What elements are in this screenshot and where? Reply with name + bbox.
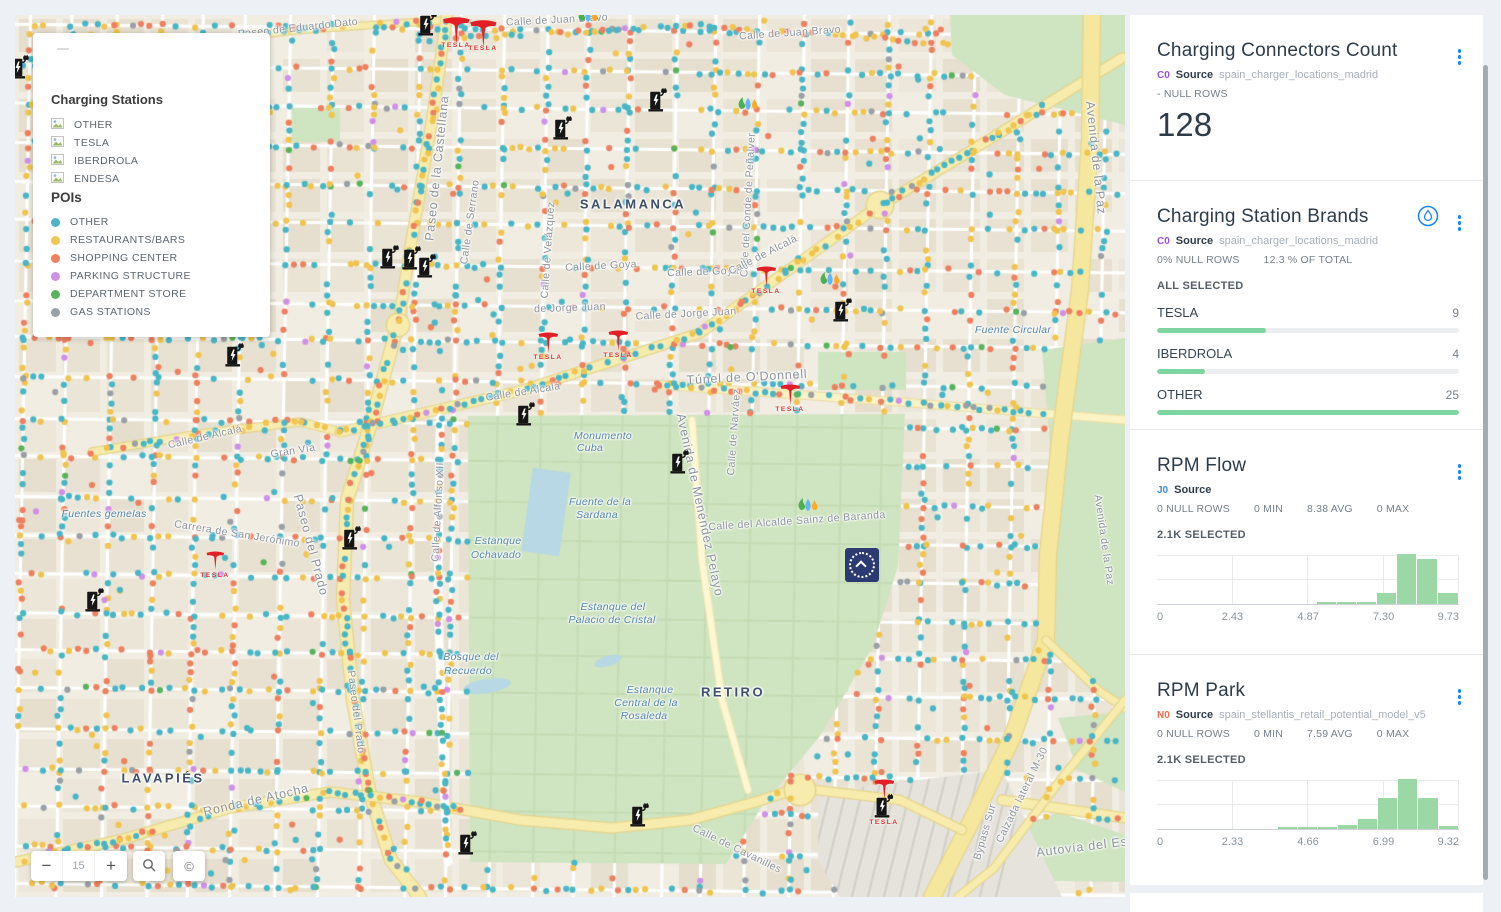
legend-station-list: OTHERTESLAIBERDROLAENDESA — [51, 116, 252, 188]
brand-category-row[interactable]: TESLA9 — [1157, 305, 1459, 333]
droplet-filter-icon — [1417, 215, 1439, 230]
histogram-bar[interactable] — [1438, 593, 1459, 604]
zoom-level: 15 — [63, 851, 95, 881]
source-line: N0 Source spain_stellantis_retail_potent… — [1157, 709, 1459, 721]
legend-poi-label: PARKING STRUCTURE — [70, 270, 191, 282]
brand-category-line: IBERDROLA4 — [1157, 346, 1459, 361]
avg-stat: 7.59 AVG — [1307, 728, 1353, 740]
brand-bar-fill — [1157, 328, 1266, 333]
tesla-marker-label: TESLA — [751, 288, 780, 295]
rpm-park-histogram[interactable] — [1157, 780, 1459, 830]
null-rows-stat: - NULL ROWS — [1157, 88, 1228, 100]
widget-charging-connectors-count: Charging Connectors Count C0 Source spai… — [1130, 15, 1483, 181]
ev-charger-marker[interactable] — [669, 450, 691, 474]
tesla-marker[interactable]: TESLA — [533, 331, 562, 361]
brand-category-list: TESLA9IBERDROLA4OTHER25 — [1157, 305, 1459, 415]
histogram-bar[interactable] — [1318, 827, 1338, 829]
axis-tick-label: 2.33 — [1222, 836, 1243, 848]
ev-charger-marker[interactable] — [832, 298, 854, 322]
source-tag: J0 — [1157, 485, 1168, 496]
legend-drag-handle[interactable] — [57, 48, 69, 50]
source-label: Source — [1176, 709, 1213, 721]
axis-tick-label: 2.43 — [1222, 611, 1243, 623]
histogram-bar[interactable] — [1377, 593, 1397, 604]
ev-charger-marker[interactable] — [341, 526, 363, 550]
source-label: Source — [1176, 69, 1213, 81]
rpm-flow-axis-ticks: 02.434.877.309.73 — [1157, 609, 1459, 625]
broken-image-icon — [51, 154, 64, 168]
legend-poi-item: SHOPPING CENTER — [51, 249, 252, 267]
broken-image-icon — [51, 136, 64, 150]
legend-poi-label: DEPARTMENT STORE — [70, 288, 186, 300]
histogram-bar[interactable] — [1357, 602, 1377, 604]
tesla-marker[interactable]: TESLA — [468, 22, 497, 52]
brand-bar-track — [1157, 328, 1459, 333]
brand-bar-track — [1157, 369, 1459, 374]
selection-status: 2.1K SELECTED — [1157, 754, 1459, 766]
min-stat: 0 MIN — [1254, 728, 1283, 740]
gas-brand-marker[interactable] — [736, 93, 760, 111]
source-tag: C0 — [1157, 70, 1170, 81]
legend-station-label: TESLA — [74, 137, 109, 149]
legend-poi-label: OTHER — [70, 216, 109, 228]
axis-tick-label: 7.30 — [1373, 611, 1394, 623]
zoom-out-button[interactable]: − — [31, 851, 63, 881]
tesla-marker[interactable]: TESLA — [775, 383, 804, 413]
widget-rpm-flow: RPM Flow J0 Source 0 NULL ROWS 0 MIN 8.3… — [1130, 430, 1483, 655]
widget-menu-button[interactable] — [1454, 685, 1466, 709]
legend-station-item: TESLA — [51, 134, 252, 152]
histogram-bar[interactable] — [1298, 827, 1318, 829]
histogram-bar[interactable] — [1358, 819, 1378, 829]
brand-bar-fill — [1157, 369, 1205, 374]
brand-category-value: 9 — [1452, 306, 1459, 320]
tesla-marker-label: TESLA — [533, 354, 562, 361]
histogram-bar[interactable] — [1278, 827, 1298, 829]
rpm-flow-histogram[interactable] — [1157, 555, 1459, 605]
histogram-bar[interactable] — [1378, 798, 1398, 829]
legend-poi-item: OTHER — [51, 213, 252, 231]
source-line: J0 Source — [1157, 484, 1459, 496]
source-line: C0 Source spain_charger_locations_madrid — [1157, 69, 1459, 81]
brand-category-label: OTHER — [1157, 387, 1203, 402]
legend-station-item: ENDESA — [51, 170, 252, 188]
source-label: Source — [1174, 484, 1211, 496]
brand-category-label: IBERDROLA — [1157, 346, 1232, 361]
legend-poi-item: PARKING STRUCTURE — [51, 267, 252, 285]
axis-tick-label: 4.87 — [1297, 611, 1318, 623]
legend-station-label: OTHER — [74, 119, 113, 131]
widget-stats: 0 NULL ROWS 0 MIN 8.38 AVG 0 MAX — [1157, 503, 1459, 515]
null-rows-stat: 0 NULL ROWS — [1157, 728, 1230, 740]
broken-image-icon — [51, 118, 64, 132]
histogram-bar[interactable] — [1417, 559, 1437, 604]
legend-poi-label: GAS STATIONS — [70, 306, 151, 318]
map-search-button[interactable] — [133, 851, 165, 881]
legend-pois-title: POIs — [51, 190, 252, 205]
brand-category-row[interactable]: IBERDROLA4 — [1157, 346, 1459, 374]
histogram-bar[interactable] — [1439, 826, 1459, 829]
max-stat: 0 MAX — [1377, 728, 1410, 740]
tesla-marker-label: TESLA — [200, 572, 229, 579]
source-dataset-name: spain_charger_locations_madrid — [1219, 69, 1378, 81]
sidebar-scrollbar[interactable] — [1483, 65, 1488, 880]
selection-status: ALL SELECTED — [1157, 280, 1459, 292]
legend-poi-item: DEPARTMENT STORE — [51, 285, 252, 303]
histogram-bar[interactable] — [1337, 602, 1357, 604]
legend-station-label: ENDESA — [74, 173, 120, 185]
brand-category-line: TESLA9 — [1157, 305, 1459, 320]
source-dataset-name: spain_stellantis_retail_potential_model_… — [1219, 709, 1426, 721]
ev-charger-marker[interactable] — [379, 245, 401, 269]
poi-color-dot — [51, 236, 60, 245]
axis-tick-label: 0 — [1157, 836, 1163, 848]
legend-station-item: IBERDROLA — [51, 152, 252, 170]
legend-poi-list: OTHERRESTAURANTS/BARSSHOPPING CENTERPARK… — [51, 213, 252, 321]
poi-color-dot — [51, 290, 60, 299]
rpm-park-axis-ticks: 02.334.666.999.32 — [1157, 834, 1459, 850]
histogram-bar[interactable] — [1398, 779, 1418, 829]
tesla-marker[interactable]: TESLA — [603, 329, 632, 359]
selection-status: 2.1K SELECTED — [1157, 529, 1459, 541]
count-value: 128 — [1157, 106, 1459, 144]
source-tag: C0 — [1157, 236, 1170, 247]
widgets-sidebar: Charging Connectors Count C0 Source spai… — [1130, 15, 1483, 885]
widget-title: RPM Park — [1157, 680, 1459, 702]
legend-station-label: IBERDROLA — [74, 155, 138, 167]
axis-tick-label: 9.32 — [1438, 836, 1459, 848]
map-analytics-dashboard: Paseo de Eduardo DatoCalle de Juan Bravo… — [0, 0, 1501, 912]
widget-menu-button[interactable] — [1454, 45, 1466, 69]
brand-bar-fill — [1157, 410, 1459, 415]
search-icon — [142, 858, 156, 875]
source-tag: N0 — [1157, 710, 1170, 721]
widget-stats: - NULL ROWS — [1157, 88, 1459, 100]
min-stat: 0 MIN — [1254, 503, 1283, 515]
ev-charger-marker[interactable] — [15, 55, 31, 79]
map-legend: Charging Stations OTHERTESLAIBERDROLAEND… — [33, 33, 270, 337]
of-total-stat: 12.3 % OF TOTAL — [1264, 254, 1353, 266]
brand-category-line: OTHER25 — [1157, 387, 1459, 402]
legend-station-item: OTHER — [51, 116, 252, 134]
legend-title: Charging Stations — [51, 92, 252, 107]
gas-brand-marker[interactable] — [796, 494, 820, 512]
null-rows-stat: 0% NULL ROWS — [1157, 254, 1240, 266]
widget-stats: 0% NULL ROWS 12.3 % OF TOTAL — [1157, 254, 1459, 266]
avg-stat: 8.38 AVG — [1307, 503, 1353, 515]
source-line: C0 Source spain_charger_locations_madrid — [1157, 235, 1459, 247]
axis-tick-label: 6.99 — [1373, 836, 1394, 848]
next-widget-peek — [1130, 893, 1483, 912]
legend-poi-item: GAS STATIONS — [51, 303, 252, 321]
widget-charging-station-brands: Charging Station Brands C0 Source spain_… — [1130, 181, 1483, 430]
widget-title: Charging Station Brands — [1157, 206, 1459, 228]
legend-poi-label: RESTAURANTS/BARS — [70, 234, 185, 246]
widget-title: Charging Connectors Count — [1157, 40, 1459, 62]
null-rows-stat: 0 NULL ROWS — [1157, 503, 1230, 515]
axis-tick-label: 4.66 — [1297, 836, 1318, 848]
ev-charger-marker[interactable] — [224, 343, 246, 367]
zoom-in-button[interactable]: + — [95, 851, 127, 881]
axis-tick-label: 9.73 — [1438, 611, 1459, 623]
source-dataset-name: spain_charger_locations_madrid — [1219, 235, 1378, 247]
ev-charger-marker[interactable] — [417, 15, 439, 36]
tesla-marker[interactable]: TESLA — [441, 19, 470, 49]
histogram-bar[interactable] — [1418, 798, 1438, 829]
tesla-marker[interactable]: TESLA — [751, 265, 780, 295]
poi-color-dot — [51, 308, 60, 317]
brand-category-row[interactable]: OTHER25 — [1157, 387, 1459, 415]
widget-stats: 0 NULL ROWS 0 MIN 7.59 AVG 0 MAX — [1157, 728, 1459, 740]
ev-charger-marker[interactable] — [552, 116, 574, 140]
max-stat: 0 MAX — [1377, 503, 1410, 515]
legend-poi-label: SHOPPING CENTER — [70, 252, 178, 264]
clear-filter-button[interactable] — [1417, 205, 1439, 227]
venue-logo-marker[interactable] — [845, 548, 879, 582]
brand-category-value: 4 — [1452, 347, 1459, 361]
widget-menu-button[interactable] — [1454, 211, 1466, 235]
ev-charger-marker[interactable] — [84, 588, 106, 612]
tesla-marker[interactable]: TESLA — [869, 778, 898, 826]
legend-poi-item: RESTAURANTS/BARS — [51, 231, 252, 249]
ev-charger-marker[interactable] — [457, 831, 479, 855]
histogram-bar[interactable] — [1317, 602, 1337, 604]
axis-tick-label: 0 — [1157, 611, 1163, 623]
source-label: Source — [1176, 235, 1213, 247]
ev-charger-marker[interactable] — [629, 803, 651, 827]
poi-color-dot — [51, 272, 60, 281]
widget-title: RPM Flow — [1157, 455, 1459, 477]
ev-charger-marker[interactable] — [416, 254, 438, 278]
brand-category-value: 25 — [1446, 388, 1459, 402]
tesla-marker-label: TESLA — [869, 819, 898, 826]
widget-rpm-park: RPM Park N0 Source spain_stellantis_reta… — [1130, 655, 1483, 885]
poi-color-dot — [51, 218, 60, 227]
map-attribution-button[interactable]: © — [173, 851, 205, 881]
tesla-marker[interactable]: TESLA — [200, 549, 229, 579]
zoom-control: − 15 + — [31, 851, 127, 881]
broken-image-icon — [51, 172, 64, 186]
gas-brand-marker[interactable] — [576, 15, 600, 23]
ev-charger-marker[interactable] — [647, 88, 669, 112]
histogram-bar[interactable] — [1338, 825, 1358, 829]
histogram-bar[interactable] — [1397, 554, 1417, 604]
tesla-marker-label: TESLA — [603, 352, 632, 359]
brand-bar-track — [1157, 410, 1459, 415]
poi-color-dot — [51, 254, 60, 263]
map-viewport[interactable]: Paseo de Eduardo DatoCalle de Juan Bravo… — [15, 15, 1125, 897]
brand-category-label: TESLA — [1157, 305, 1198, 320]
tesla-marker-label: TESLA — [775, 406, 804, 413]
widget-menu-button[interactable] — [1454, 460, 1466, 484]
gas-brand-marker[interactable] — [818, 268, 842, 286]
ev-charger-marker[interactable] — [515, 402, 537, 426]
